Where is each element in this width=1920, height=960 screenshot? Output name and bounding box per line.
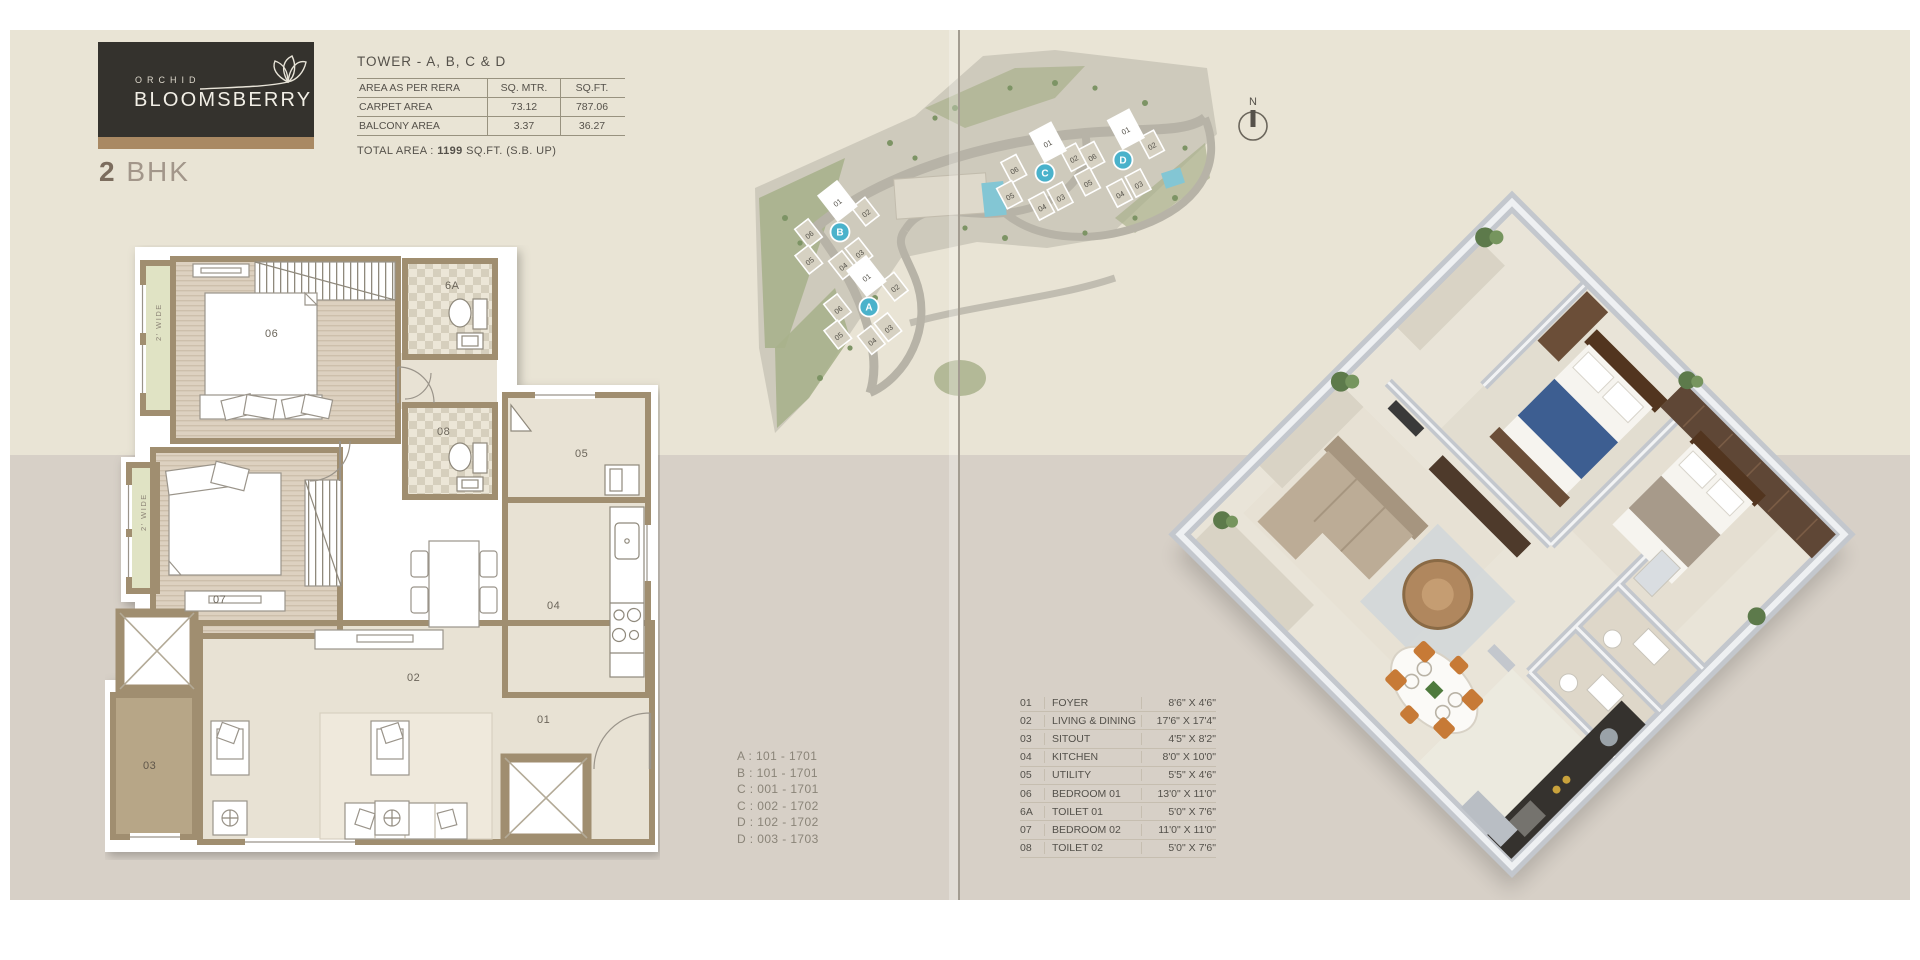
floorplan-2d: 06 6A 08 07 05 04 02 03 01 2' WIDE 2' WI…	[105, 245, 660, 860]
carpet-area-sqft: 787.06	[560, 98, 623, 116]
legend-name: TOILET 02	[1044, 842, 1141, 854]
page-fold-highlight	[949, 30, 958, 900]
legend-num: 07	[1020, 824, 1044, 836]
unit-type-title: 2 BHK	[99, 156, 190, 188]
legend-name: KITCHEN	[1044, 751, 1141, 763]
total-area-line: TOTAL AREA : 1199 SQ.FT. (S.B. UP)	[357, 145, 625, 157]
table-row: CARPET AREA 73.12 787.06	[357, 97, 625, 116]
legend-num: 03	[1020, 733, 1044, 745]
room-label-toilet2: 08	[437, 426, 450, 438]
room-label-toilet1: 6A	[445, 280, 460, 292]
legend-name: BEDROOM 02	[1044, 824, 1141, 836]
total-prefix: TOTAL AREA :	[357, 145, 437, 157]
legend-num: 08	[1020, 842, 1044, 854]
legend-name: LIVING & DINING	[1044, 715, 1141, 727]
table-row: 6ATOILET 015'0" X 7'6"	[1020, 803, 1216, 821]
legend-dims: 11'0" X 11'0"	[1141, 824, 1216, 836]
unit-type-label: BHK	[126, 156, 190, 187]
legend-dims: 5'0" X 7'6"	[1141, 842, 1216, 854]
carpet-area-sqmtr: 73.12	[487, 98, 560, 116]
room-label-living: 02	[407, 672, 420, 684]
unit-numbers-list: A : 101 - 1701 B : 101 - 1701 C : 001 - …	[737, 748, 819, 847]
balcony-area-sqft: 36.27	[560, 117, 623, 135]
table-row: 02LIVING & DINING17'6" X 17'4"	[1020, 712, 1216, 730]
legend-dims: 5'0" X 7'6"	[1141, 806, 1216, 818]
list-item: B : 101 - 1701	[737, 765, 819, 782]
brand-name-top: ORCHID	[135, 75, 201, 85]
header-label: AREA AS PER RERA	[357, 79, 487, 97]
table-row: 08TOILET 025'0" X 7'6"	[1020, 840, 1216, 858]
room-label-bed2: 07	[213, 594, 226, 606]
rera-area-table: TOWER - A, B, C & D AREA AS PER RERA SQ.…	[357, 54, 625, 157]
brand-accent-strip	[98, 137, 314, 149]
legend-name: SITOUT	[1044, 733, 1141, 745]
room-legend-table: 01FOYER8'6" X 4'6" 02LIVING & DINING17'6…	[1020, 694, 1216, 858]
legend-num: 01	[1020, 697, 1044, 709]
list-item: D : 003 - 1703	[737, 831, 819, 848]
legend-name: BEDROOM 01	[1044, 788, 1141, 800]
list-item: C : 002 - 1702	[737, 798, 819, 815]
brand-logo: ORCHID BLOOMSBERRY	[98, 42, 314, 137]
legend-num: 04	[1020, 751, 1044, 763]
list-item: C : 001 - 1701	[737, 781, 819, 798]
table-row: 07BEDROOM 0211'0" X 11'0"	[1020, 821, 1216, 839]
legend-dims: 13'0" X 11'0"	[1141, 788, 1216, 800]
table-row: 03SITOUT4'5" X 8'2"	[1020, 730, 1216, 748]
legend-dims: 17'6" X 17'4"	[1141, 715, 1216, 727]
legend-num: 6A	[1020, 806, 1044, 818]
carpet-area-label: CARPET AREA	[357, 98, 487, 116]
table-row: 04KITCHEN8'0" X 10'0"	[1020, 749, 1216, 767]
legend-name: FOYER	[1044, 697, 1141, 709]
room-label-sitout: 03	[143, 760, 156, 772]
legend-dims: 5'5" X 4'6"	[1141, 769, 1216, 781]
balcony-area-label: BALCONY AREA	[357, 117, 487, 135]
tower-letter-a: A	[865, 302, 872, 313]
room-label-bed1: 06	[265, 328, 278, 340]
table-row: 01FOYER8'6" X 4'6"	[1020, 694, 1216, 712]
list-item: A : 101 - 1701	[737, 748, 819, 765]
legend-dims: 8'0" X 10'0"	[1141, 751, 1216, 763]
header-sqmtr: SQ. MTR.	[487, 79, 560, 97]
table-row: 05UTILITY5'5" X 4'6"	[1020, 767, 1216, 785]
list-item: D : 102 - 1702	[737, 814, 819, 831]
legend-name: UTILITY	[1044, 769, 1141, 781]
legend-dims: 4'5" X 8'2"	[1141, 733, 1216, 745]
room-label-utility: 05	[575, 448, 588, 460]
room-label-kitchen: 04	[547, 600, 560, 612]
lotus-flower-icon	[196, 54, 308, 96]
legend-dims: 8'6" X 4'6"	[1141, 697, 1216, 709]
balcony2-width-label: 2' WIDE	[139, 493, 148, 531]
legend-num: 05	[1020, 769, 1044, 781]
unit-type-number: 2	[99, 156, 117, 187]
tower-title: TOWER - A, B, C & D	[357, 54, 625, 69]
tower-letter-b: B	[836, 227, 843, 238]
legend-num: 06	[1020, 788, 1044, 800]
table-row: 06BEDROOM 0113'0" X 11'0"	[1020, 785, 1216, 803]
balcony1-width-label: 2' WIDE	[154, 303, 163, 341]
legend-name: TOILET 01	[1044, 806, 1141, 818]
room-label-foyer: 01	[537, 714, 550, 726]
table-row: BALCONY AREA 3.37 36.27	[357, 116, 625, 136]
balcony-area-sqmtr: 3.37	[487, 117, 560, 135]
header-sqft: SQ.FT.	[560, 79, 623, 97]
total-value: 1199	[437, 145, 462, 157]
area-table-header: AREA AS PER RERA SQ. MTR. SQ.FT.	[357, 78, 625, 97]
brochure-spread: ORCHID BLOOMSBERRY 2 BHK TOWER - A, B, C…	[10, 30, 1910, 900]
legend-num: 02	[1020, 715, 1044, 727]
total-suffix: SQ.FT. (S.B. UP)	[463, 145, 557, 157]
